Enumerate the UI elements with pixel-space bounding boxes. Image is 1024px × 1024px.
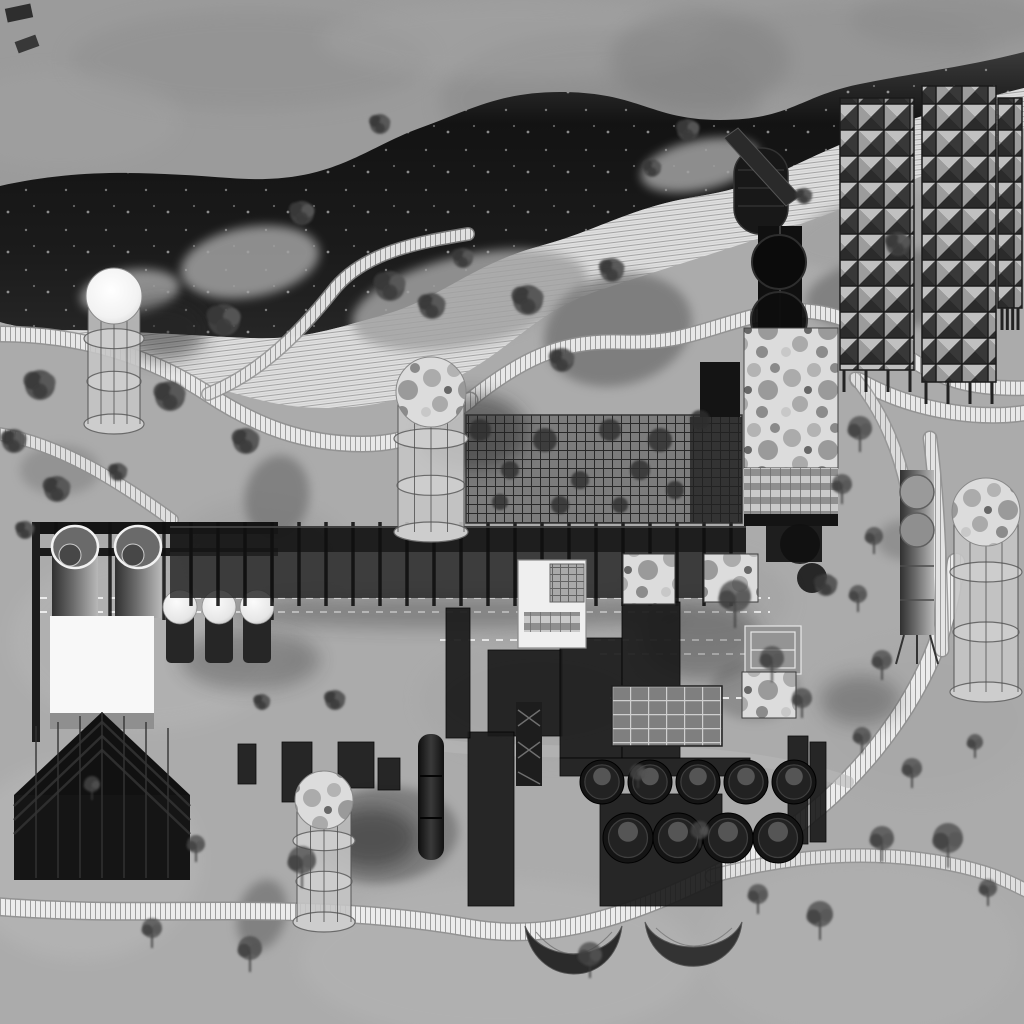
glass-roof-hall [612, 686, 722, 746]
vine-clump [612, 497, 628, 513]
mottled-roof [742, 672, 796, 718]
kiln-inner-1 [59, 544, 81, 566]
vine-clump [551, 496, 569, 514]
white-roof-hall [50, 616, 154, 713]
vine-clump [571, 471, 589, 489]
vine-clump [533, 428, 557, 452]
tank-hatch [768, 822, 788, 842]
silo-cap-1 [900, 475, 934, 509]
gasholder-tower [950, 478, 1022, 702]
vine-clump [469, 419, 491, 441]
vine-clump [501, 461, 519, 479]
masterplan-canvas [0, 0, 1024, 1024]
vine-clump [630, 460, 650, 480]
tank-hatch [618, 822, 638, 842]
tank-hatch [593, 768, 611, 786]
digester-tank-1 [752, 235, 806, 289]
gasholder-tower [394, 357, 468, 542]
dark-shed [468, 732, 514, 906]
chimney-stack [418, 734, 444, 860]
cast-shadow [820, 675, 900, 725]
kiln-west-wall [32, 522, 40, 742]
vine-clump [599, 419, 621, 441]
pavilion-skylight [550, 564, 584, 602]
tower-dome-top [86, 268, 142, 324]
vine-clump [690, 410, 710, 430]
tank-hatch [785, 768, 803, 786]
tank-hatch [668, 822, 688, 842]
vine-clump [666, 481, 684, 499]
silo-cap-2 [900, 513, 934, 547]
tank-hatch [718, 822, 738, 842]
vine-clump [492, 494, 508, 510]
pyramid-roof-slabs [840, 86, 1022, 404]
silo-circle-1 [780, 524, 820, 564]
tower-dome-top [295, 771, 353, 829]
dark-shed [378, 758, 400, 790]
dark-shed [446, 608, 470, 738]
tower-dome-top [952, 478, 1020, 546]
hall-glass-facade [744, 468, 838, 514]
canopy-dark-block [700, 362, 740, 417]
right-silo [896, 470, 938, 664]
pyramid-roof-slab [922, 86, 996, 382]
cloud-patch [610, 10, 790, 110]
tank-hatch [737, 768, 755, 786]
pyramid-roof-slab [998, 98, 1022, 308]
kiln-inner-2 [122, 544, 144, 566]
pavilion-windows [524, 612, 580, 632]
tower-dome-top [396, 357, 466, 427]
vine-clump [648, 428, 672, 452]
hall-base [744, 514, 838, 526]
mottled-roof-hall [744, 328, 838, 468]
site-plan-rendering [0, 0, 1024, 1024]
tank-hatch [689, 768, 707, 786]
mottled-roof [623, 554, 675, 604]
gasholder-tower [84, 268, 144, 434]
canopy-dark-bay [690, 417, 742, 522]
dark-shed [238, 744, 256, 784]
